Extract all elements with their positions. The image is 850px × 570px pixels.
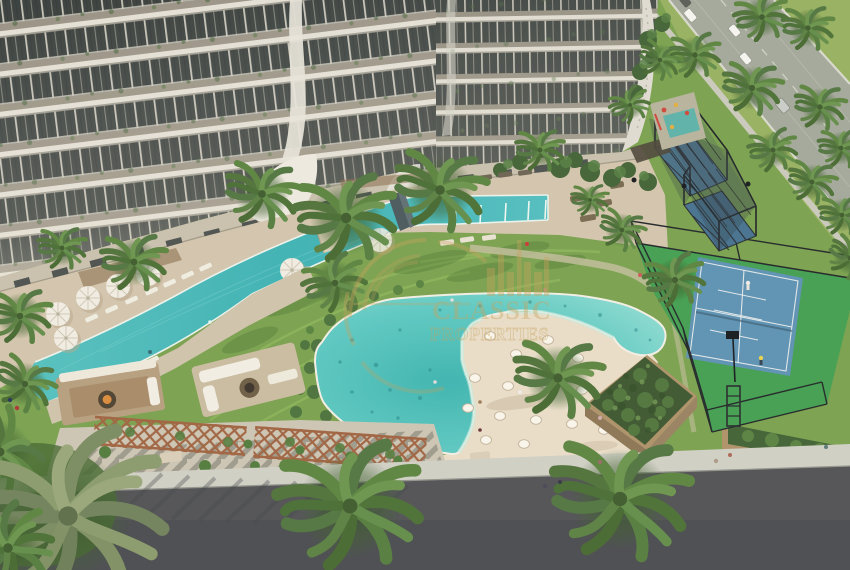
- svg-text:CLASSIC: CLASSIC: [432, 296, 552, 325]
- svg-text:PROPERTIES: PROPERTIES: [430, 324, 549, 344]
